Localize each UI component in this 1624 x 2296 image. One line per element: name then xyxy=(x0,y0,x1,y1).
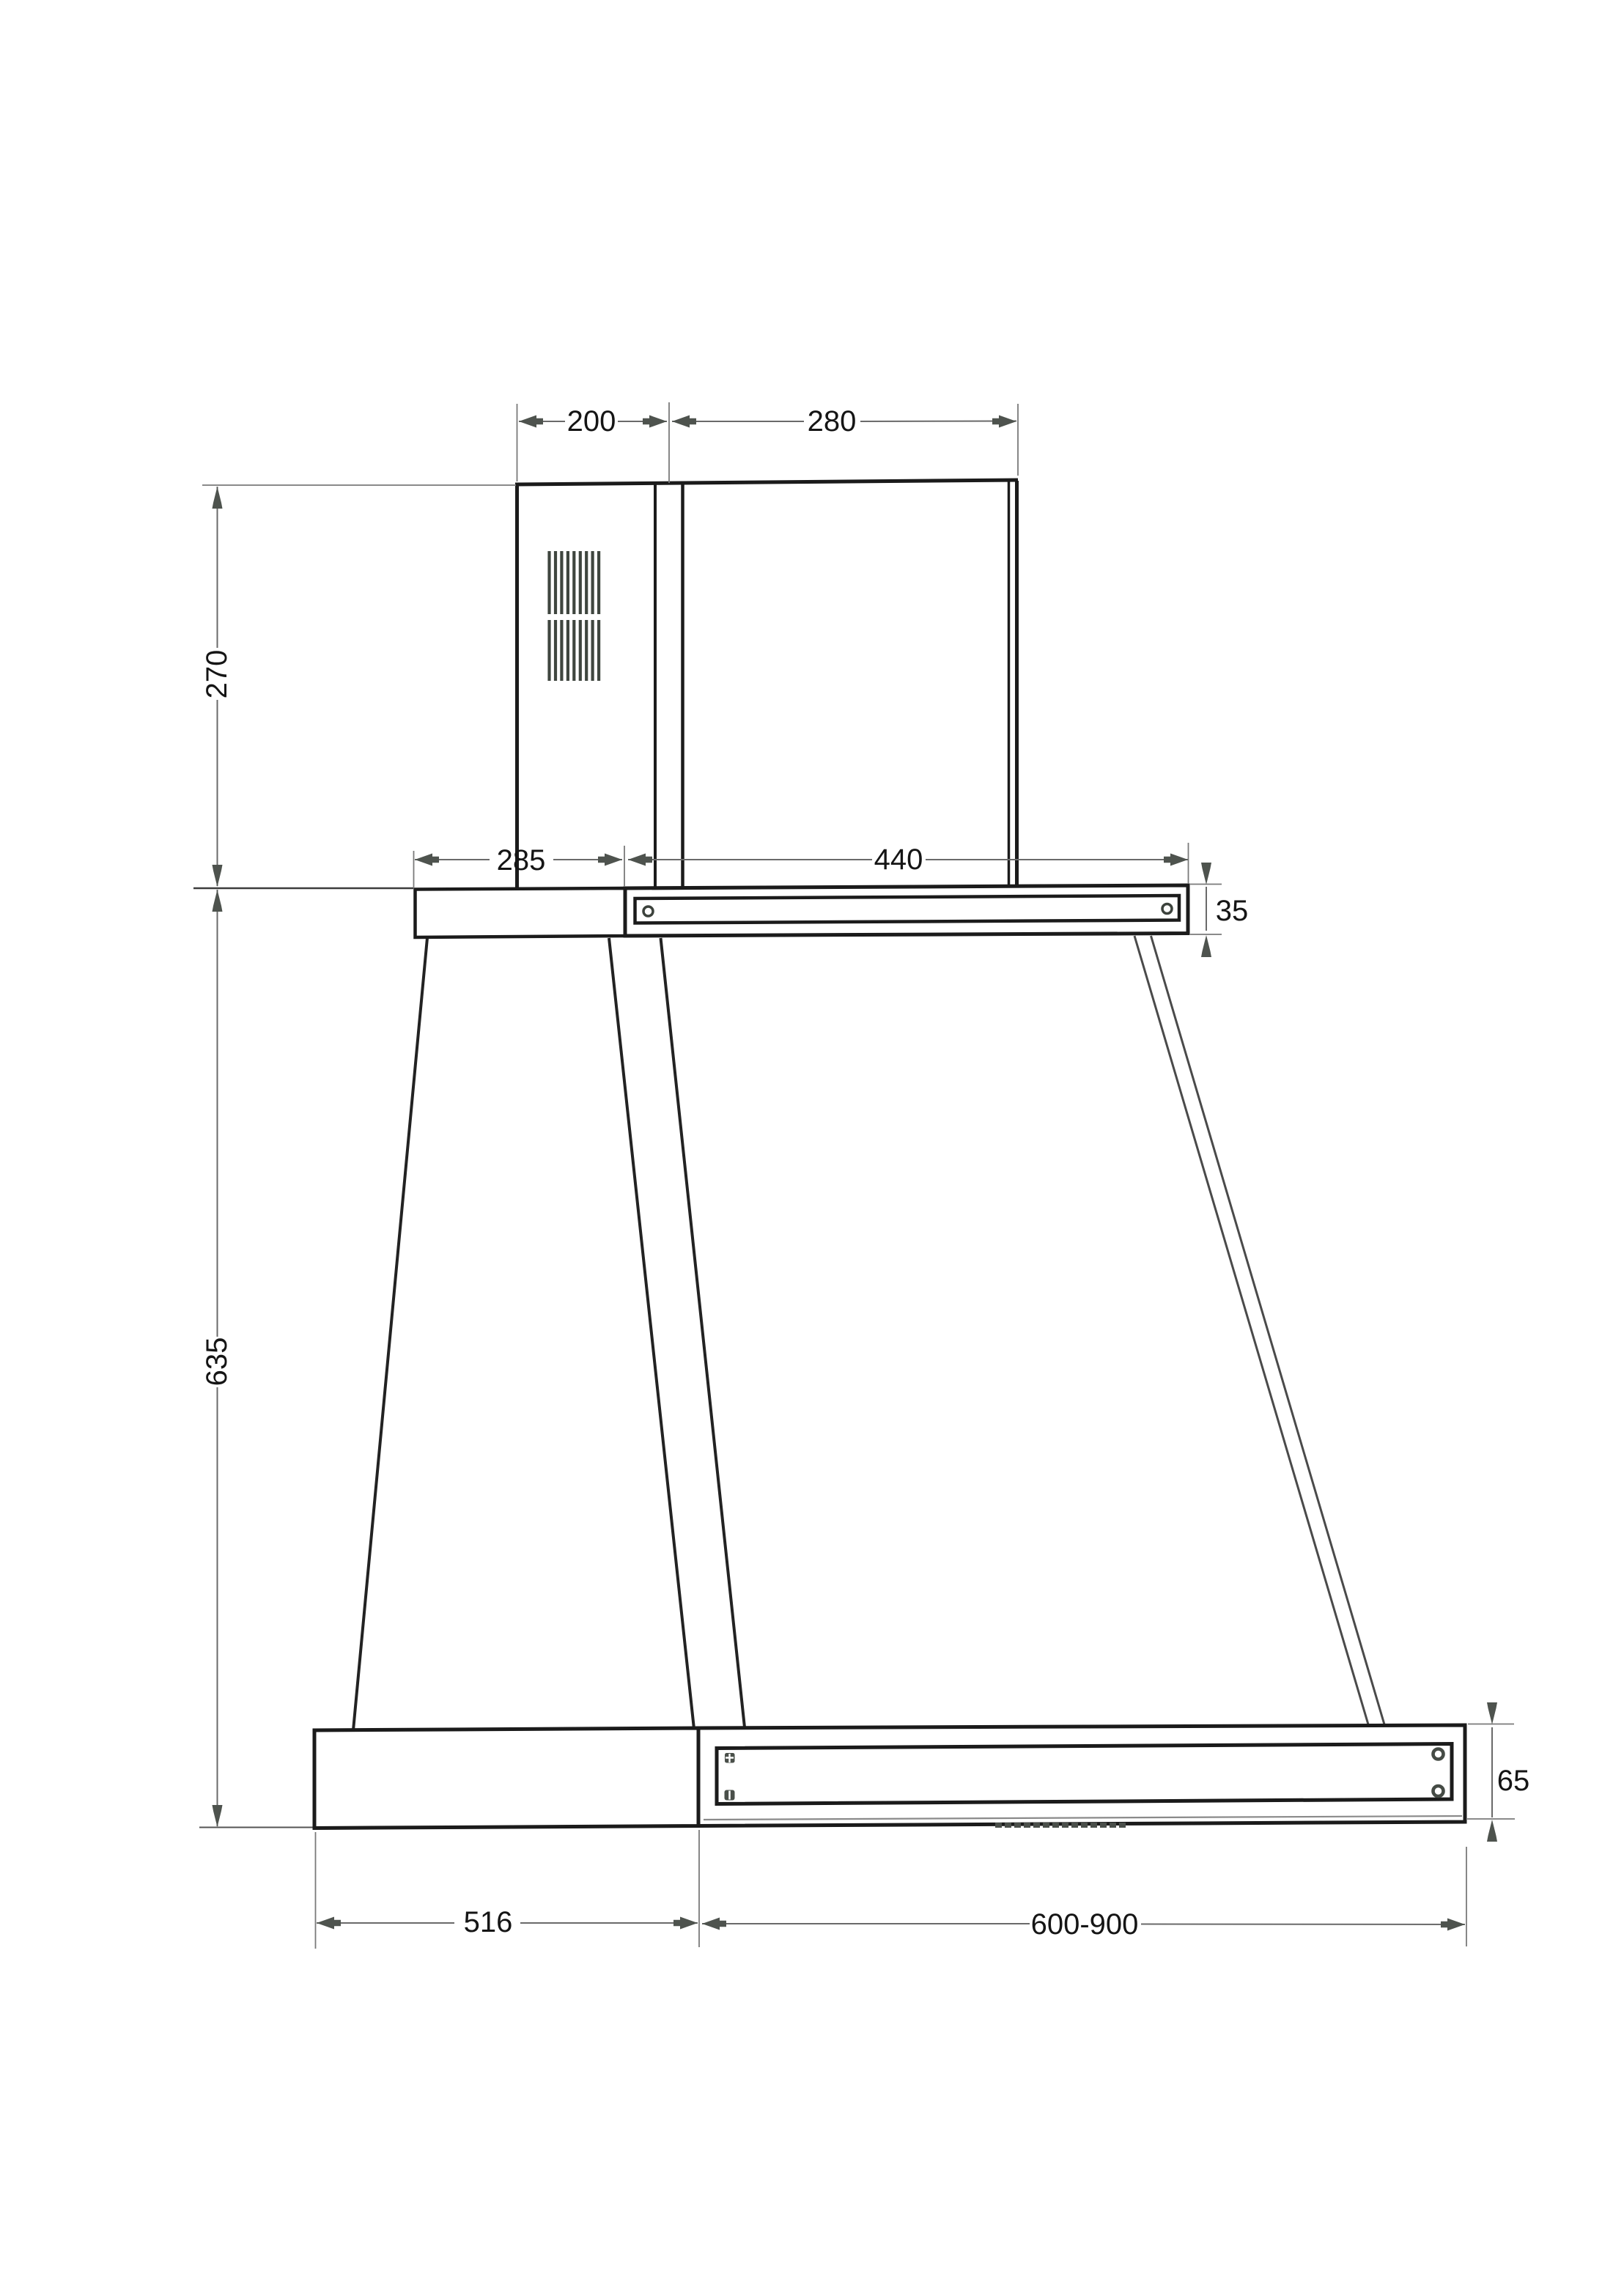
svg-text:35: 35 xyxy=(1216,895,1249,927)
svg-text:285: 285 xyxy=(497,844,546,876)
svg-text:200: 200 xyxy=(567,405,616,438)
svg-text:270: 270 xyxy=(201,650,233,699)
svg-text:600-900: 600-900 xyxy=(1031,1908,1139,1941)
svg-text:280: 280 xyxy=(808,405,857,438)
svg-text:440: 440 xyxy=(874,844,923,876)
svg-text:635: 635 xyxy=(201,1337,233,1387)
svg-text:65: 65 xyxy=(1497,1765,1530,1797)
svg-text:516: 516 xyxy=(464,1906,513,1938)
